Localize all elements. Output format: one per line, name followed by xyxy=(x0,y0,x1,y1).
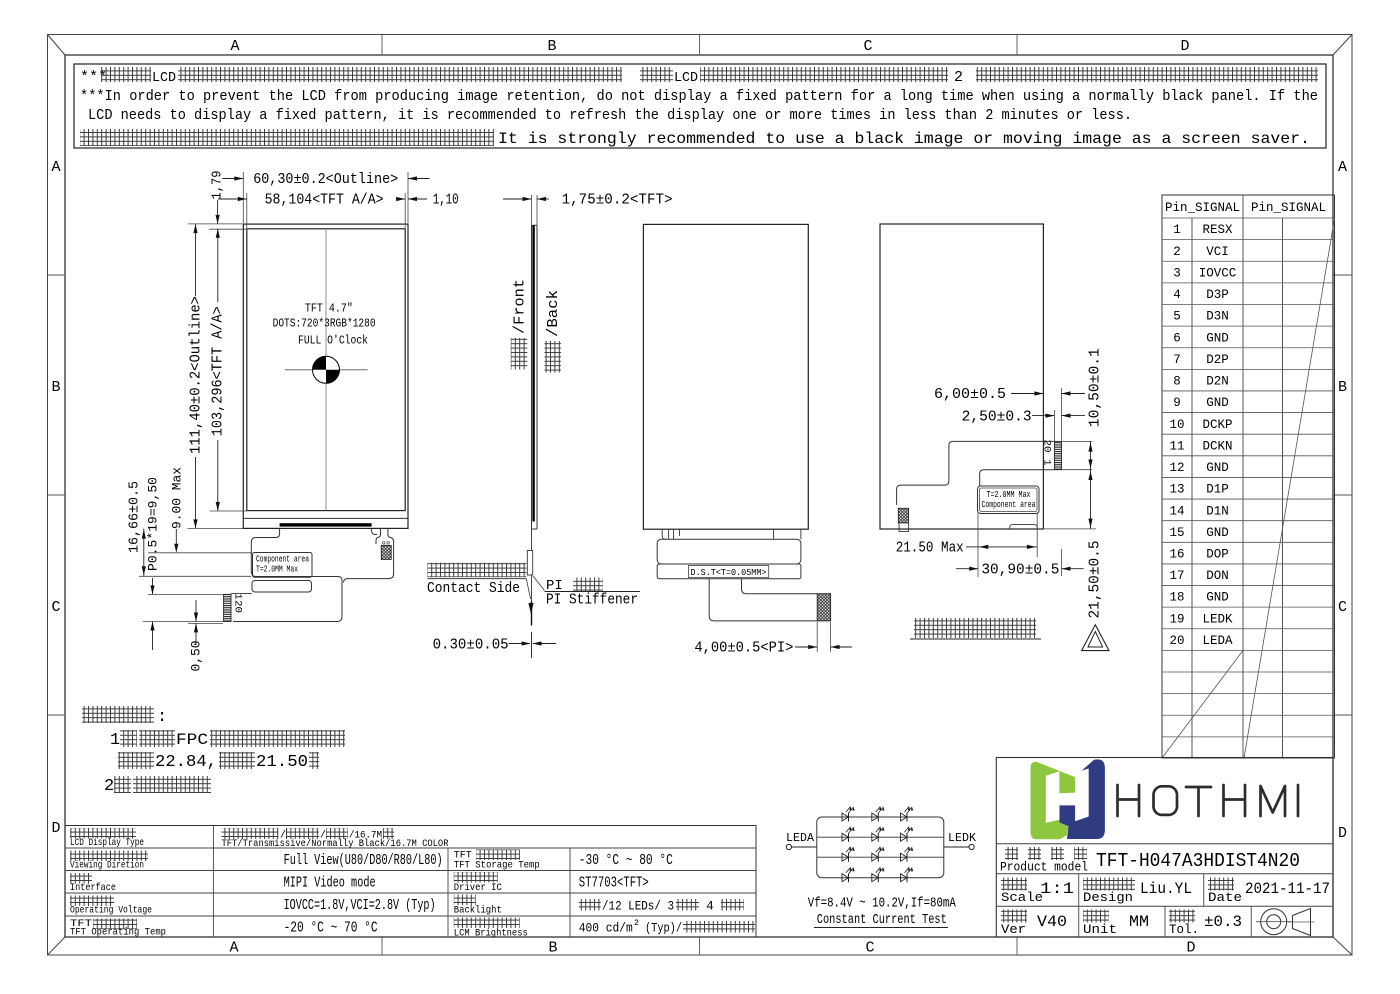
svg-text:LEDK: LEDK xyxy=(948,831,977,845)
svg-text:A: A xyxy=(230,38,239,55)
svg-text:TFT-H047A3HDIST4N20: TFT-H047A3HDIST4N20 xyxy=(1096,850,1300,872)
svg-text:9: 9 xyxy=(1173,396,1181,410)
svg-text:16: 16 xyxy=(1169,548,1184,562)
svg-text:1: 1 xyxy=(1041,459,1052,465)
svg-text:103,296<TFT A/A>: 103,296<TFT A/A> xyxy=(210,306,226,436)
svg-text:1,10: 1,10 xyxy=(433,192,459,209)
svg-text:GND: GND xyxy=(1206,461,1229,475)
svg-text:Backlight: Backlight xyxy=(454,905,502,917)
svg-text:12: 12 xyxy=(1169,461,1184,475)
svg-text:19: 19 xyxy=(1169,612,1184,626)
svg-text:Date: Date xyxy=(1208,891,1242,905)
svg-text:MIPI Video mode: MIPI Video mode xyxy=(284,875,376,892)
svg-text:Pin_SIGNAL: Pin_SIGNAL xyxy=(1251,201,1326,215)
svg-text:7: 7 xyxy=(1173,353,1181,367)
svg-text:14: 14 xyxy=(1169,504,1184,518)
svg-text:IOVCC: IOVCC xyxy=(1199,266,1237,280)
svg-text:20: 20 xyxy=(232,600,243,613)
svg-text:60,30±0.2<Outline>: 60,30±0.2<Outline> xyxy=(253,171,398,188)
svg-text:11: 11 xyxy=(1169,439,1184,453)
svg-text:(Typ)/: (Typ)/ xyxy=(645,921,682,936)
svg-text:IOVCC=1.8V,VCI=2.8V (Typ): IOVCC=1.8V,VCI=2.8V (Typ) xyxy=(284,897,436,914)
svg-text:D3N: D3N xyxy=(1206,310,1229,324)
svg-text:13: 13 xyxy=(1169,483,1184,497)
svg-text:Contact Side: Contact Side xyxy=(427,581,520,597)
svg-text:C: C xyxy=(51,599,60,616)
svg-text:21,50±0.5: 21,50±0.5 xyxy=(1088,541,1104,619)
svg-text:-20 °C ~ 70 °C: -20 °C ~ 70 °C xyxy=(284,920,378,937)
svg-text:D1N: D1N xyxy=(1206,504,1229,518)
svg-text:ST7703<TFT>: ST7703<TFT> xyxy=(579,875,649,892)
svg-text::: : xyxy=(157,708,167,727)
svg-text:DOTS:720*3RGB*1280: DOTS:720*3RGB*1280 xyxy=(273,316,376,330)
svg-text:D2P: D2P xyxy=(1206,353,1229,367)
svg-text:VCI: VCI xyxy=(1206,245,1229,259)
svg-text:D: D xyxy=(51,820,60,837)
svg-text:2: 2 xyxy=(1173,245,1181,259)
svg-text:GND: GND xyxy=(1206,331,1229,345)
svg-text:1,79: 1,79 xyxy=(211,171,226,200)
svg-text:D1P: D1P xyxy=(1206,483,1229,497)
svg-text:16,66±0.5: 16,66±0.5 xyxy=(128,481,143,553)
svg-text:GND: GND xyxy=(1206,526,1229,540)
svg-text:A: A xyxy=(229,940,238,957)
svg-text:4,00±0.5<PI>: 4,00±0.5<PI> xyxy=(694,640,793,657)
svg-text:LCD Display Type: LCD Display Type xyxy=(70,837,144,849)
svg-text:Scale: Scale xyxy=(1001,891,1043,905)
svg-text:Vf=8.4V ~ 10.2V,If=80mA: Vf=8.4V ~ 10.2V,If=80mA xyxy=(808,897,957,912)
svg-text:A: A xyxy=(1338,159,1347,176)
svg-text:2: 2 xyxy=(954,69,963,86)
svg-text:C: C xyxy=(1338,599,1347,616)
svg-text:V40: V40 xyxy=(1037,913,1067,931)
svg-text:5: 5 xyxy=(1173,310,1181,324)
svg-text:C: C xyxy=(863,38,872,55)
svg-text:LEDA: LEDA xyxy=(1202,634,1233,648)
svg-text:Full View(U80/D80/R80/L80): Full View(U80/D80/R80/L80) xyxy=(284,852,443,869)
svg-text:6,00±0.5: 6,00±0.5 xyxy=(934,386,1006,403)
svg-text:Constant Current Test: Constant Current Test xyxy=(817,913,947,928)
svg-text:DCKP: DCKP xyxy=(1202,418,1232,432)
svg-text:Ver: Ver xyxy=(1001,923,1026,937)
svg-text:22.84,: 22.84, xyxy=(155,753,217,772)
svg-text:A: A xyxy=(51,159,60,176)
svg-text:B: B xyxy=(548,940,557,957)
svg-text:P0.5*19=9,50: P0.5*19=9,50 xyxy=(146,477,161,571)
svg-text:LCM Brightness: LCM Brightness xyxy=(454,928,528,940)
svg-text:Design: Design xyxy=(1083,891,1133,905)
svg-text:20: 20 xyxy=(1169,634,1184,648)
svg-text:D3P: D3P xyxy=(1206,288,1229,302)
svg-text:Operating Voltage: Operating Voltage xyxy=(70,905,152,917)
svg-text:4: 4 xyxy=(1173,288,1181,302)
svg-text:Viewing Diretion: Viewing Diretion xyxy=(70,860,144,872)
svg-text:8: 8 xyxy=(1173,375,1181,389)
svg-text:It is strongly recommended to: It is strongly recommended to use a blac… xyxy=(498,130,1310,148)
svg-text:21.50 Max: 21.50 Max xyxy=(896,540,964,557)
svg-text:±0.3: ±0.3 xyxy=(1204,913,1242,931)
svg-text:Tol.: Tol. xyxy=(1169,923,1199,937)
svg-text:D.S.T<T=0.05MM>: D.S.T<T=0.05MM> xyxy=(691,567,767,578)
svg-text:T=2.0MM Max: T=2.0MM Max xyxy=(256,564,298,575)
svg-text:GND: GND xyxy=(1206,396,1229,410)
svg-text:DCKN: DCKN xyxy=(1202,439,1232,453)
svg-text:Component area: Component area xyxy=(982,499,1036,510)
svg-text:400 cd/m: 400 cd/m xyxy=(579,921,633,936)
svg-text:D: D xyxy=(1338,825,1347,842)
svg-text:LCD needs to display a fixed p: LCD needs to display a fixed pattern, it… xyxy=(88,107,1132,124)
svg-text:B: B xyxy=(547,38,556,55)
svg-text:0.30±0.05: 0.30±0.05 xyxy=(433,637,509,654)
svg-text:20: 20 xyxy=(1041,440,1052,453)
svg-text:LEDA: LEDA xyxy=(786,831,815,845)
svg-text:TFT/Transmissive/Normally Blac: TFT/Transmissive/Normally Black/16.7M CO… xyxy=(222,838,450,850)
svg-text:15: 15 xyxy=(1169,526,1184,540)
svg-text:PI Stiffener: PI Stiffener xyxy=(546,593,638,609)
svg-text:1:1: 1:1 xyxy=(1040,880,1074,898)
svg-text:Interface: Interface xyxy=(70,882,116,894)
svg-text:C: C xyxy=(865,940,874,957)
svg-text:RESX: RESX xyxy=(1202,223,1233,237)
svg-text:111,40±0.2<Outline>: 111,40±0.2<Outline> xyxy=(189,296,205,454)
svg-text:1: 1 xyxy=(110,731,120,750)
svg-text:3: 3 xyxy=(1173,266,1181,280)
svg-text:1: 1 xyxy=(1173,223,1181,237)
svg-text:Driver IC: Driver IC xyxy=(454,882,502,894)
svg-text:2: 2 xyxy=(104,777,114,796)
svg-text:/Back: /Back xyxy=(545,290,562,337)
svg-text:B: B xyxy=(1338,379,1347,396)
svg-text:/12 LEDs/ 3: /12 LEDs/ 3 xyxy=(602,899,674,914)
svg-text:DON: DON xyxy=(1206,569,1229,583)
svg-text:21.50: 21.50 xyxy=(256,753,308,772)
svg-text:58,104<TFT A/A>: 58,104<TFT A/A> xyxy=(265,192,384,209)
svg-text:D: D xyxy=(1180,38,1189,55)
svg-text:6: 6 xyxy=(1173,331,1181,345)
svg-text:2021-11-17: 2021-11-17 xyxy=(1245,880,1330,898)
svg-text:17: 17 xyxy=(1169,569,1184,583)
svg-text:9.00 Max: 9.00 Max xyxy=(170,467,185,529)
svg-text:GND: GND xyxy=(1206,591,1229,605)
svg-text:D: D xyxy=(1186,940,1195,957)
svg-text:Pin_SIGNAL: Pin_SIGNAL xyxy=(1165,201,1240,215)
svg-text:TFT Storage Temp: TFT Storage Temp xyxy=(454,860,540,872)
svg-text:1,75±0.2<TFT>: 1,75±0.2<TFT> xyxy=(562,192,673,209)
svg-text:2: 2 xyxy=(634,919,639,928)
svg-text:FPC: FPC xyxy=(176,731,208,749)
svg-text:10,50±0.1: 10,50±0.1 xyxy=(1087,348,1103,427)
svg-text:DOP: DOP xyxy=(1206,548,1229,562)
svg-text:B: B xyxy=(51,379,60,396)
svg-text:Unit: Unit xyxy=(1083,923,1117,937)
svg-text:0,50: 0,50 xyxy=(189,641,204,672)
svg-text:Liu.YL: Liu.YL xyxy=(1140,880,1192,898)
svg-text:D2N: D2N xyxy=(1206,375,1229,389)
svg-text:TFT Operating Temp: TFT Operating Temp xyxy=(70,927,166,939)
svg-text:FULL O'Clock: FULL O'Clock xyxy=(298,333,368,347)
svg-text:-30 °C ~ 80 °C: -30 °C ~ 80 °C xyxy=(579,852,673,869)
svg-text:TFT 4.7″: TFT 4.7″ xyxy=(305,302,353,316)
svg-text:/Front: /Front xyxy=(512,279,529,334)
svg-text:LCD: LCD xyxy=(674,70,698,86)
svg-text:LEDK: LEDK xyxy=(1202,612,1233,626)
svg-text:18: 18 xyxy=(1169,591,1184,605)
svg-text:***In order to prevent the LCD: ***In order to prevent the LCD from prod… xyxy=(80,88,1318,105)
svg-text:Product model: Product model xyxy=(1000,861,1088,875)
svg-text:MM: MM xyxy=(1129,913,1149,931)
svg-text:1: 1 xyxy=(232,593,243,599)
svg-text:2,50±0.3: 2,50±0.3 xyxy=(962,409,1032,426)
svg-text:10: 10 xyxy=(1169,418,1184,432)
svg-text:30,90±0.5: 30,90±0.5 xyxy=(981,562,1059,579)
svg-text:LCD: LCD xyxy=(152,70,176,86)
svg-text:4: 4 xyxy=(706,899,714,914)
